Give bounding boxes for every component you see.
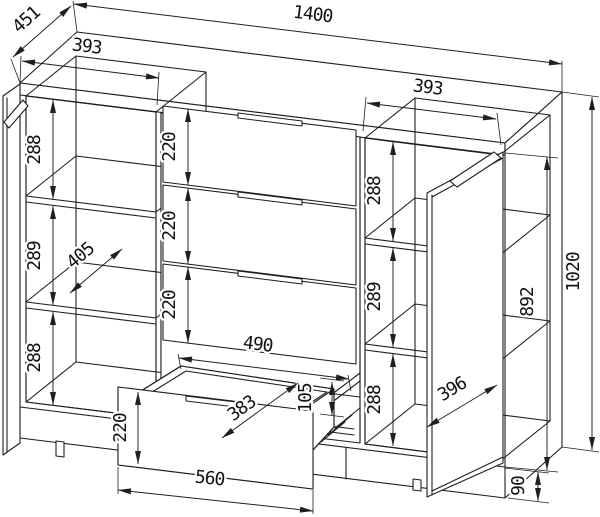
- dim-label-door-height: 892: [517, 287, 538, 317]
- dim-label-drawer-front-width: 560: [194, 467, 226, 491]
- dim-label-drawer1-height: 220: [159, 132, 180, 162]
- dim-label-drawer3-height: 220: [159, 290, 180, 320]
- cabinet-dimension-drawing: 1400 451 393 393 288 289: [0, 0, 600, 517]
- dim-label-drawer2-height: 220: [159, 211, 180, 241]
- dim-label-right-middle-space: 289: [364, 282, 385, 312]
- dim-label-overall-width: 1400: [292, 2, 334, 28]
- dim-label-right-top-space: 288: [364, 176, 385, 206]
- door-foot: [413, 479, 421, 491]
- right-door-open: [413, 152, 503, 497]
- dim-label-drawer-front-height: 220: [110, 413, 131, 443]
- dim-label-plinth-height: 90: [508, 476, 529, 496]
- dim-overall-height: 1020: [562, 92, 599, 452]
- dim-label-right-bottom-space: 288: [364, 385, 385, 415]
- dim-label-drawer-inner-width: 490: [242, 332, 274, 356]
- dim-label-left-bottom-space: 288: [24, 343, 45, 373]
- dim-label-overall-height: 1020: [563, 252, 584, 292]
- dim-label-left-middle-space: 289: [24, 241, 45, 271]
- dim-label-left-section-width: 393: [71, 34, 103, 58]
- dim-label-right-section-width: 393: [412, 75, 444, 99]
- dim-label-drawer-side-height: 105: [295, 383, 316, 413]
- dim-label-left-top-space: 288: [24, 135, 45, 165]
- dim-label-overall-depth: 451: [8, 2, 44, 37]
- cabinet-foot: [56, 441, 64, 457]
- technical-drawing-canvas: 1400 451 393 393 288 289: [0, 0, 600, 517]
